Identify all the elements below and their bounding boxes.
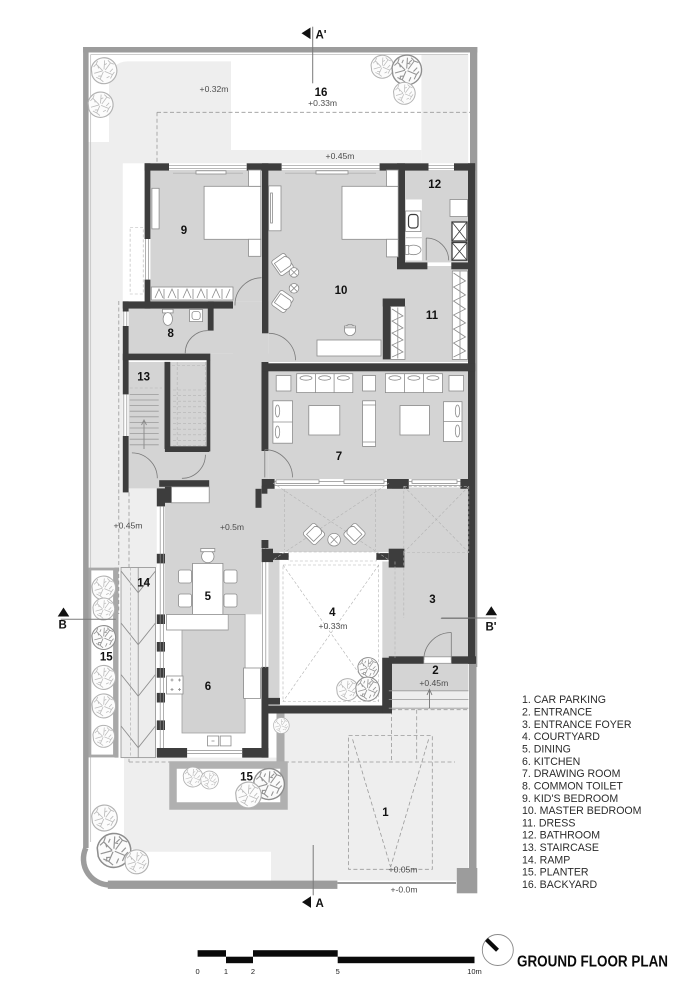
svg-text:A: A	[316, 898, 324, 910]
svg-text:11: 11	[426, 310, 439, 322]
svg-text:+0.32m: +0.32m	[200, 84, 229, 94]
svg-text:13. STAIRCASE: 13. STAIRCASE	[522, 842, 599, 854]
svg-text:+0.45m: +0.45m	[114, 521, 143, 531]
svg-text:0: 0	[196, 967, 200, 976]
svg-text:15: 15	[100, 652, 113, 664]
svg-text:15: 15	[240, 772, 253, 784]
svg-text:14: 14	[137, 578, 150, 590]
svg-text:8. COMMON TOILET: 8. COMMON TOILET	[522, 780, 623, 792]
svg-text:10. MASTER BEDROOM: 10. MASTER BEDROOM	[522, 805, 642, 817]
svg-text:7: 7	[336, 451, 342, 463]
svg-text:2: 2	[432, 665, 438, 677]
svg-text:9. KID'S BEDROOM: 9. KID'S BEDROOM	[522, 793, 618, 805]
svg-text:10m: 10m	[467, 967, 482, 976]
svg-text:3: 3	[429, 594, 435, 606]
svg-text:5. DINING: 5. DINING	[522, 744, 571, 756]
svg-text:1. CAR PARKING: 1. CAR PARKING	[522, 694, 606, 706]
svg-text:+0.05m: +0.05m	[389, 865, 418, 875]
svg-text:2. ENTRANCE: 2. ENTRANCE	[522, 707, 592, 719]
svg-text:A': A'	[316, 30, 327, 42]
svg-text:GROUND FLOOR PLAN: GROUND FLOOR PLAN	[517, 954, 668, 971]
svg-text:14. RAMP: 14. RAMP	[522, 854, 570, 866]
svg-text:B': B'	[486, 621, 497, 633]
svg-text:B: B	[59, 620, 67, 632]
svg-text:+0.33m: +0.33m	[308, 98, 337, 108]
svg-text:12: 12	[428, 179, 441, 191]
svg-text:5: 5	[336, 967, 340, 976]
svg-text:6. KITCHEN: 6. KITCHEN	[522, 756, 580, 768]
svg-text:+0.33m: +0.33m	[319, 621, 348, 631]
svg-text:1: 1	[224, 967, 228, 976]
svg-text:16. BACKYARD: 16. BACKYARD	[522, 879, 598, 891]
svg-text:+-0.0m: +-0.0m	[391, 885, 418, 895]
svg-text:2: 2	[251, 967, 255, 976]
svg-text:12. BATHROOM: 12. BATHROOM	[522, 830, 600, 842]
svg-text:15. PLANTER: 15. PLANTER	[522, 867, 589, 879]
svg-text:6: 6	[205, 681, 211, 693]
svg-text:+0.5m: +0.5m	[220, 522, 244, 532]
svg-text:+0.45m: +0.45m	[419, 678, 448, 688]
svg-text:+0.45m: +0.45m	[326, 151, 355, 161]
svg-text:8: 8	[167, 328, 174, 340]
svg-text:4. COURTYARD: 4. COURTYARD	[522, 731, 600, 743]
svg-text:4: 4	[329, 607, 336, 619]
svg-text:9: 9	[181, 225, 187, 237]
svg-text:10: 10	[335, 285, 348, 297]
svg-text:11. DRESS: 11. DRESS	[522, 817, 575, 829]
svg-text:7. DRAWING ROOM: 7. DRAWING ROOM	[522, 768, 620, 780]
svg-text:3. ENTRANCE FOYER: 3. ENTRANCE FOYER	[522, 719, 632, 731]
svg-text:5: 5	[205, 591, 212, 603]
svg-text:1: 1	[382, 807, 389, 819]
svg-text:13: 13	[137, 372, 150, 384]
